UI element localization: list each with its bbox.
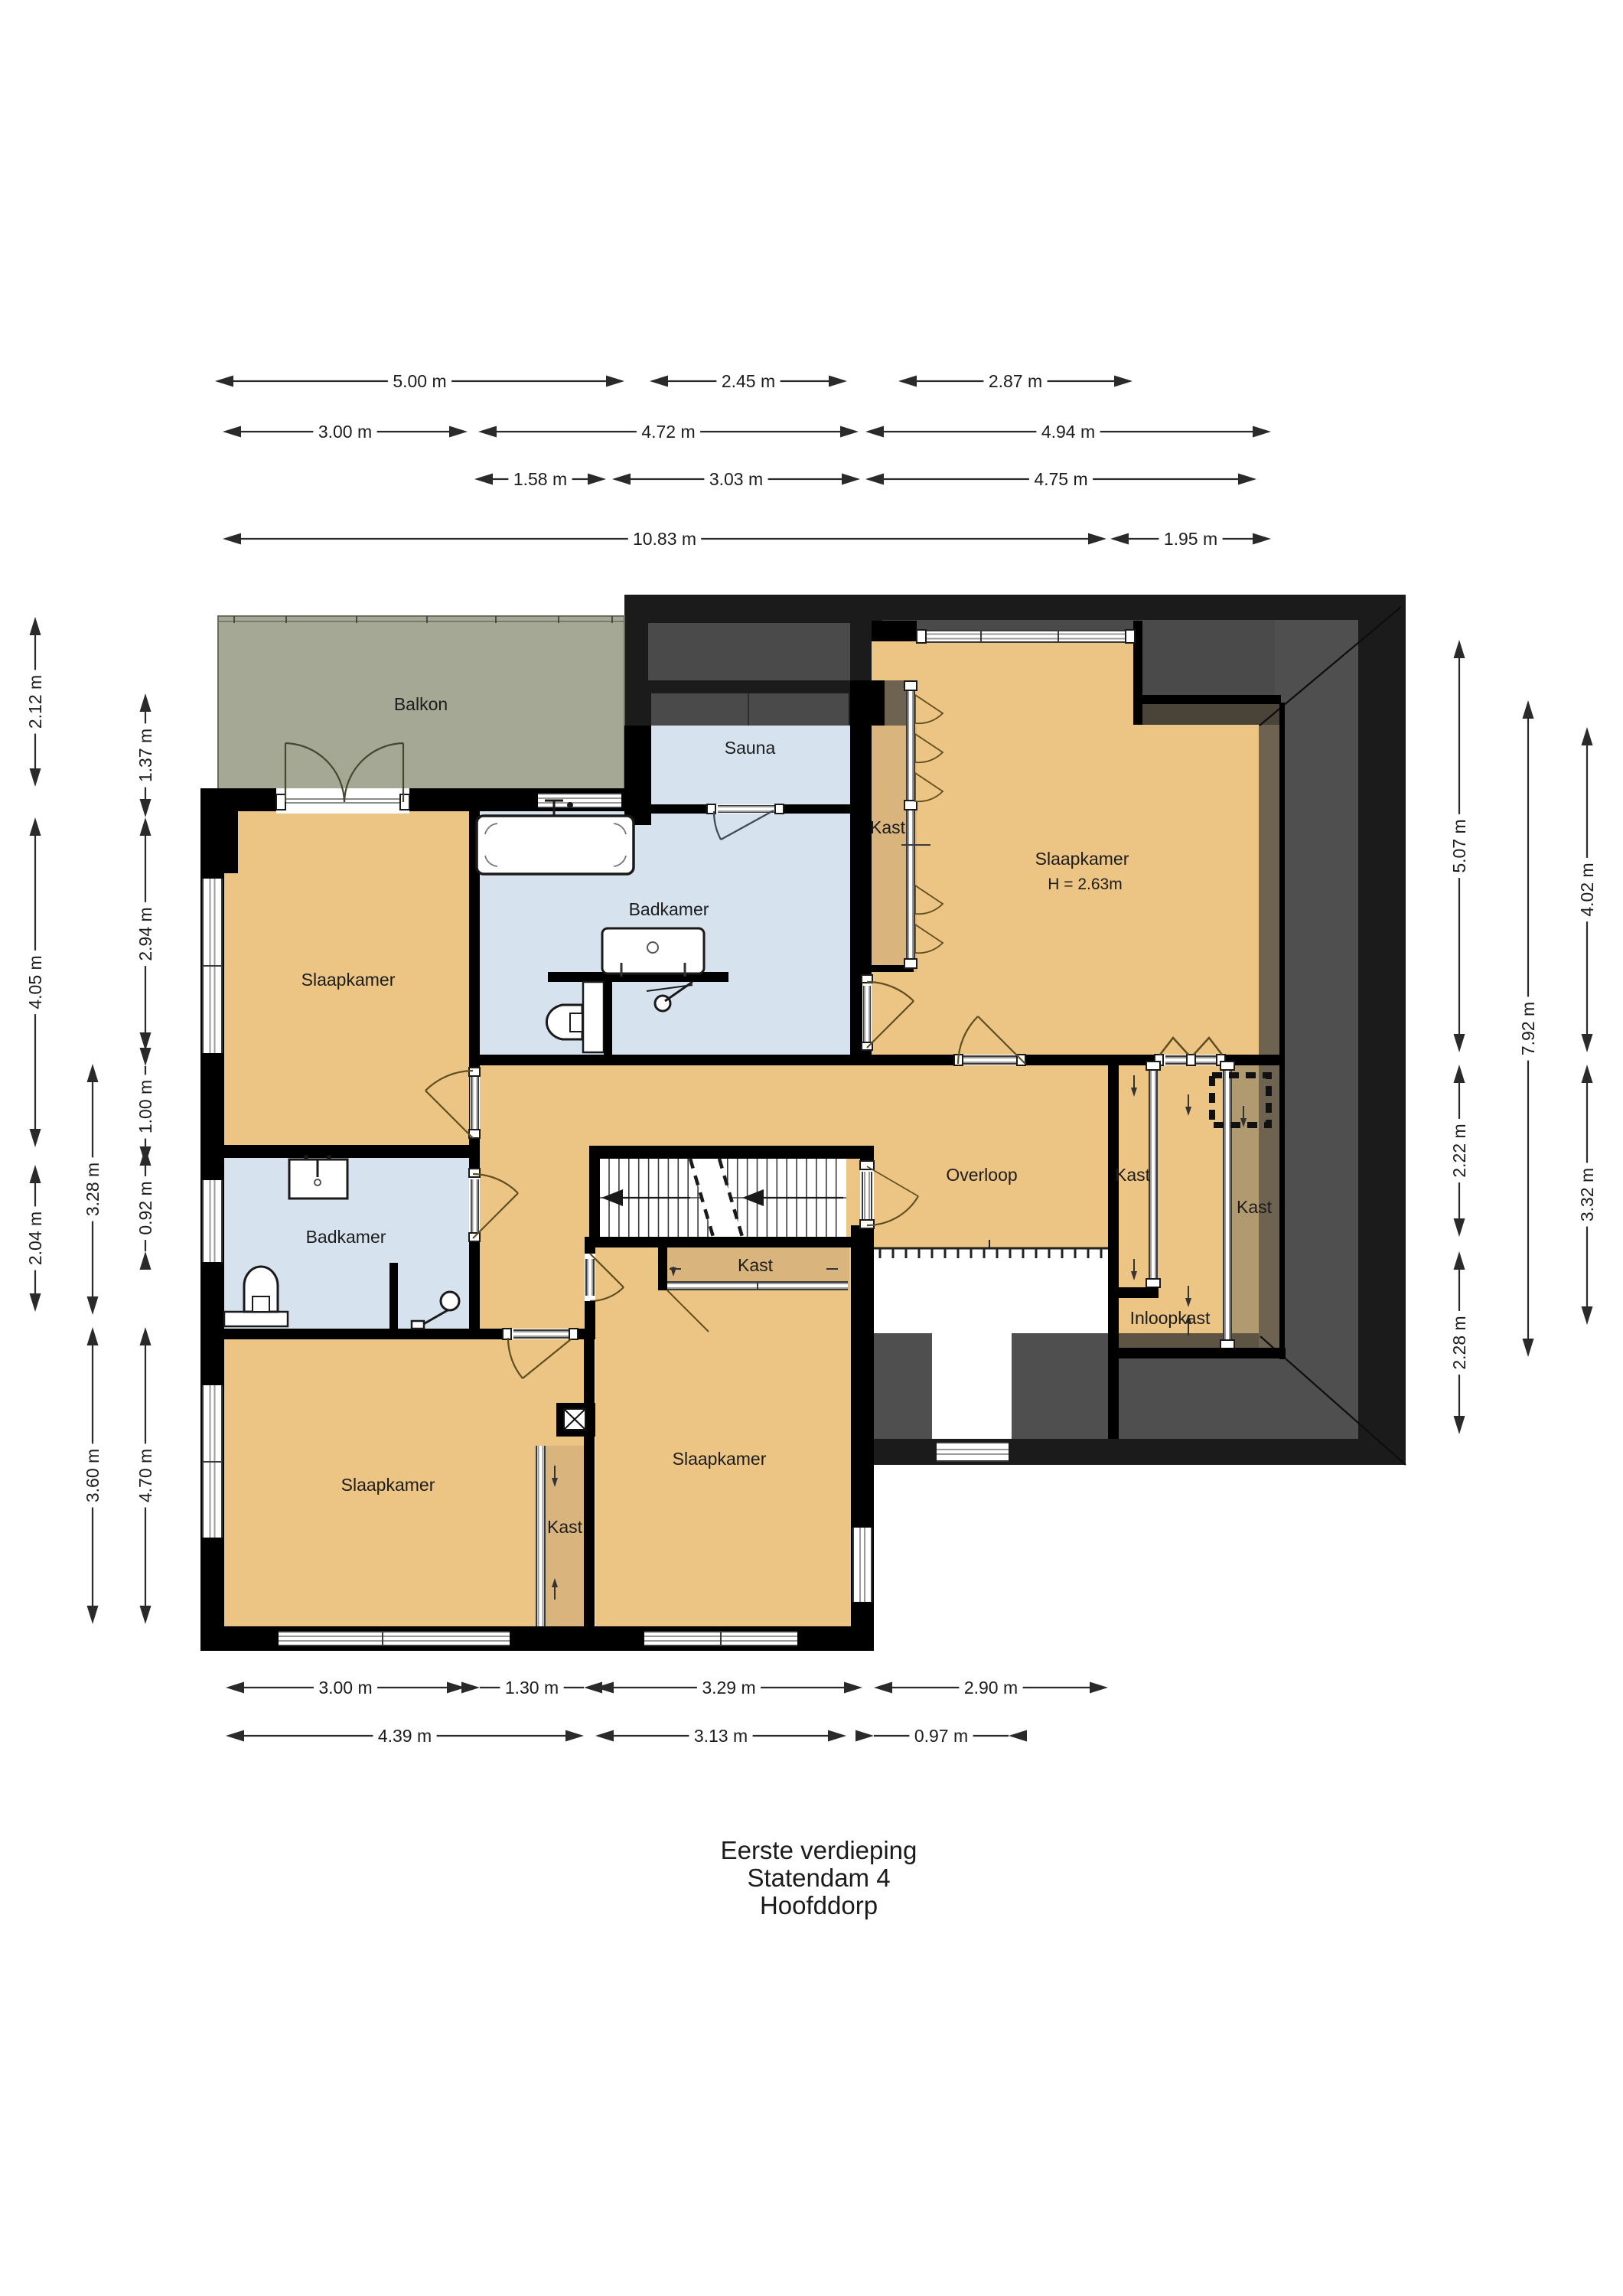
svg-text:2.87 m: 2.87 m — [989, 371, 1042, 391]
svg-text:Slaapkamer: Slaapkamer — [673, 1449, 767, 1469]
svg-text:Kast: Kast — [738, 1255, 774, 1275]
svg-text:Badkamer: Badkamer — [629, 899, 709, 919]
svg-text:2.12 m: 2.12 m — [25, 675, 45, 729]
svg-text:3.00 m: 3.00 m — [318, 422, 372, 442]
svg-text:Badkamer: Badkamer — [306, 1227, 386, 1247]
svg-text:4.75 m: 4.75 m — [1034, 469, 1087, 489]
svg-text:3.60 m: 3.60 m — [83, 1449, 103, 1502]
svg-text:10.83 m: 10.83 m — [633, 529, 696, 549]
svg-text:1.37 m: 1.37 m — [135, 729, 155, 782]
svg-text:2.94 m: 2.94 m — [135, 907, 155, 960]
svg-text:4.02 m: 4.02 m — [1577, 863, 1597, 916]
svg-text:Kast: Kast — [1115, 1165, 1151, 1185]
svg-text:1.00 m: 1.00 m — [135, 1080, 155, 1133]
svg-text:4.05 m: 4.05 m — [25, 955, 45, 1009]
svg-text:4.39 m: 4.39 m — [378, 1726, 432, 1746]
svg-text:H = 2.63m: H = 2.63m — [1048, 876, 1122, 893]
svg-text:Kast: Kast — [547, 1517, 583, 1537]
svg-text:1.30 m: 1.30 m — [505, 1678, 559, 1698]
svg-text:2.28 m: 2.28 m — [1449, 1316, 1469, 1369]
svg-text:Eerste verdieping: Eerste verdieping — [721, 1836, 917, 1864]
svg-text:3.28 m: 3.28 m — [83, 1163, 103, 1216]
svg-text:4.94 m: 4.94 m — [1041, 422, 1095, 442]
svg-text:Hoofddorp: Hoofddorp — [760, 1891, 878, 1919]
svg-text:5.00 m: 5.00 m — [393, 371, 446, 391]
svg-text:2.04 m: 2.04 m — [25, 1212, 45, 1265]
svg-text:Overloop: Overloop — [946, 1165, 1017, 1185]
svg-text:Slaapkamer: Slaapkamer — [1035, 849, 1129, 869]
svg-text:2.45 m: 2.45 m — [722, 371, 775, 391]
svg-text:2.90 m: 2.90 m — [964, 1678, 1018, 1698]
svg-text:Kast: Kast — [1237, 1197, 1273, 1217]
svg-text:3.00 m: 3.00 m — [318, 1678, 372, 1698]
svg-text:Inloopkast: Inloopkast — [1130, 1308, 1211, 1328]
svg-text:5.07 m: 5.07 m — [1449, 819, 1469, 872]
svg-text:Kast: Kast — [870, 817, 906, 837]
svg-text:4.70 m: 4.70 m — [135, 1449, 155, 1502]
svg-text:Balkon: Balkon — [394, 694, 448, 714]
svg-text:0.92 m: 0.92 m — [135, 1181, 155, 1234]
svg-text:Sauna: Sauna — [725, 738, 776, 758]
svg-text:7.92 m: 7.92 m — [1518, 1002, 1538, 1055]
svg-text:3.13 m: 3.13 m — [694, 1726, 748, 1746]
svg-text:1.95 m: 1.95 m — [1164, 529, 1217, 549]
svg-text:2.22 m: 2.22 m — [1449, 1124, 1469, 1177]
svg-text:4.72 m: 4.72 m — [641, 422, 695, 442]
svg-text:Slaapkamer: Slaapkamer — [341, 1475, 435, 1495]
svg-text:3.03 m: 3.03 m — [709, 469, 763, 489]
svg-text:Statendam 4: Statendam 4 — [747, 1864, 890, 1892]
svg-text:1.58 m: 1.58 m — [513, 469, 567, 489]
svg-text:3.32 m: 3.32 m — [1577, 1168, 1597, 1221]
svg-text:3.29 m: 3.29 m — [702, 1678, 755, 1698]
svg-text:0.97 m: 0.97 m — [914, 1726, 968, 1746]
svg-text:Slaapkamer: Slaapkamer — [301, 970, 396, 990]
